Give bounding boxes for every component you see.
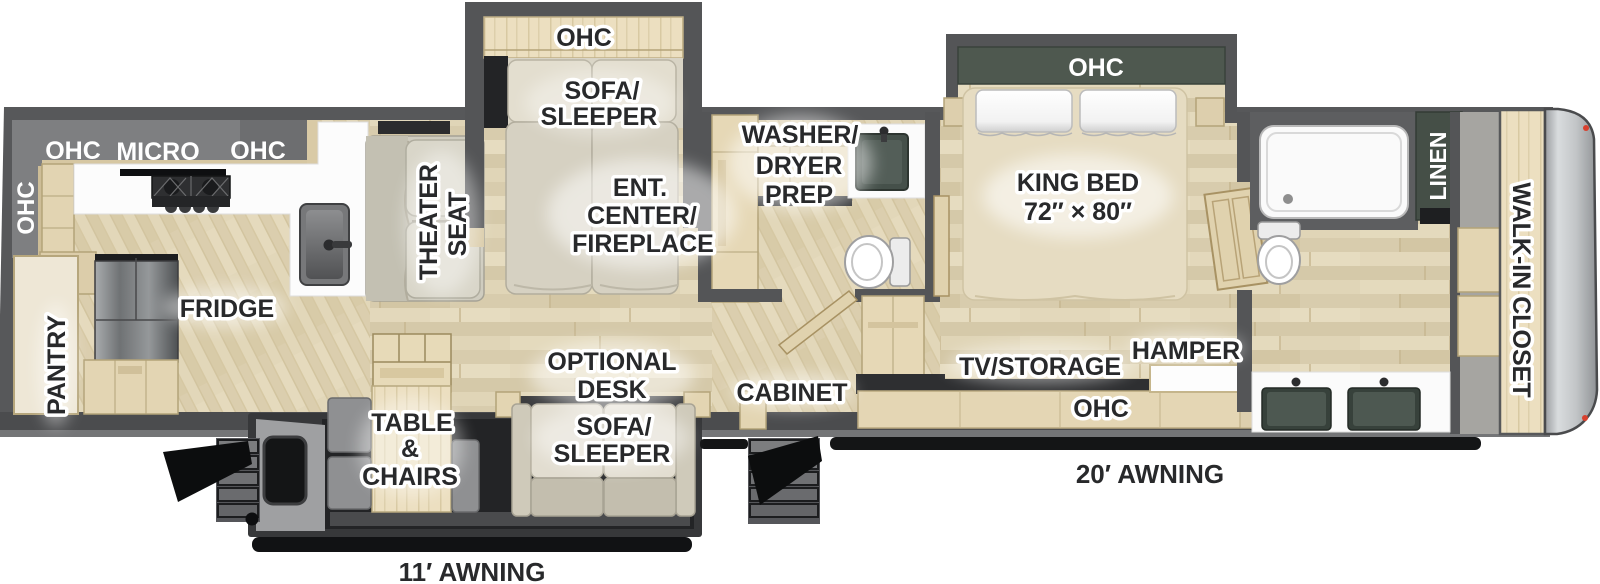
svg-text:OHC: OHC [556, 24, 612, 52]
svg-text:SOFA/: SOFA/ [576, 413, 651, 441]
svg-text:PANTRY: PANTRY [43, 315, 71, 415]
svg-text:SOFA/: SOFA/ [564, 77, 639, 105]
svg-text:11′ AWNING: 11′ AWNING [399, 557, 546, 584]
svg-text:FRIDGE: FRIDGE [180, 295, 274, 323]
svg-text:WALK-IN CLOSET: WALK-IN CLOSET [1507, 182, 1535, 397]
svg-text:ENT.: ENT. [613, 174, 667, 202]
svg-text:LINEN: LINEN [1425, 132, 1451, 201]
svg-text:SLEEPER: SLEEPER [541, 103, 658, 131]
svg-text:DESK: DESK [577, 376, 646, 404]
svg-text:72″ × 80″: 72″ × 80″ [1024, 198, 1132, 226]
svg-text:CABINET: CABINET [736, 379, 847, 407]
svg-text:OHC: OHC [13, 181, 40, 234]
svg-text:OPTIONAL: OPTIONAL [547, 348, 676, 376]
svg-text:HAMPER: HAMPER [1132, 337, 1240, 365]
svg-text:SEAT: SEAT [444, 192, 472, 257]
svg-text:CHAIRS: CHAIRS [362, 463, 458, 491]
svg-text:20′ AWNING: 20′ AWNING [1076, 459, 1224, 489]
svg-text:TABLE: TABLE [371, 409, 452, 437]
svg-text:SLEEPER: SLEEPER [554, 440, 671, 468]
svg-text:DRYER: DRYER [756, 152, 843, 180]
svg-text:OHC: OHC [45, 137, 101, 165]
svg-text:KING BED: KING BED [1017, 169, 1139, 197]
svg-text:THEATER: THEATER [415, 164, 443, 280]
svg-text:WASHER/: WASHER/ [742, 121, 859, 149]
svg-text:OHC: OHC [1068, 54, 1124, 82]
svg-text:&: & [401, 435, 419, 463]
svg-text:MICRO: MICRO [116, 138, 199, 166]
svg-text:PREP: PREP [765, 181, 833, 209]
svg-text:FIREPLACE: FIREPLACE [572, 230, 714, 258]
svg-text:OHC: OHC [1073, 395, 1129, 423]
svg-text:TV/STORAGE: TV/STORAGE [959, 353, 1121, 381]
svg-text:CENTER/: CENTER/ [587, 202, 697, 230]
svg-text:OHC: OHC [230, 137, 286, 165]
